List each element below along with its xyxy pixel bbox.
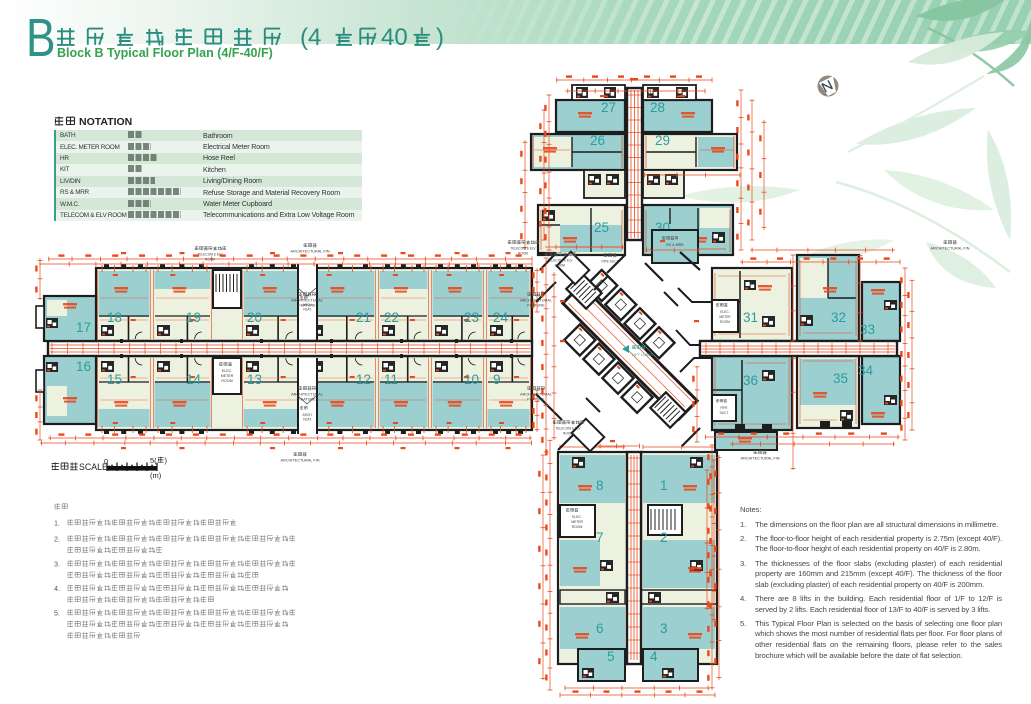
svg-text:36: 36 (743, 373, 758, 388)
svg-text:19: 19 (186, 310, 201, 325)
svg-text:16: 16 (76, 359, 91, 374)
svg-text:11: 11 (384, 372, 398, 387)
svg-text:ROOM: ROOM (518, 251, 528, 255)
svg-text:DUCT: DUCT (720, 411, 729, 415)
svg-text:ARCHITECTURAL FIN: ARCHITECTURAL FIN (931, 247, 970, 251)
svg-text:8: 8 (596, 478, 604, 493)
svg-text:27: 27 (601, 100, 616, 115)
svg-text:ARCHITECTURAL FIN: ARCHITECTURAL FIN (281, 459, 320, 463)
svg-text:23: 23 (464, 310, 479, 325)
svg-text:ROOM: ROOM (563, 431, 573, 435)
svg-text:29: 29 (655, 133, 670, 148)
svg-text:20: 20 (247, 310, 262, 325)
svg-text:31: 31 (743, 310, 758, 325)
svg-text:28: 28 (650, 100, 665, 115)
svg-text:LIFT LOBBY: LIFT LOBBY (632, 353, 654, 357)
svg-text:15: 15 (107, 372, 122, 387)
svg-text:4.: 4. (54, 584, 60, 593)
svg-text:PIPE: PIPE (720, 406, 727, 410)
svg-text:ARCHITECTURAL FIN: ARCHITECTURAL FIN (291, 250, 330, 254)
svg-text:5(: 5( (150, 456, 157, 465)
svg-text:ARCHITECTURAL: ARCHITECTURAL (520, 393, 552, 397)
svg-text:ROOM: ROOM (720, 320, 730, 324)
svg-text:ROOM: ROOM (555, 263, 565, 267)
svg-text:35: 35 (833, 371, 848, 386)
svg-text:4: 4 (650, 649, 658, 664)
svg-text:7: 7 (596, 530, 604, 545)
svg-text:RS & MRR: RS & MRR (666, 243, 684, 247)
svg-text:FEATURE: FEATURE (298, 303, 316, 307)
svg-text:ROOM: ROOM (572, 525, 583, 529)
svg-text:ELEC.: ELEC. (720, 310, 729, 314)
svg-text:1.: 1. (54, 518, 60, 527)
svg-text:12: 12 (356, 372, 371, 387)
svg-text:(4: (4 (300, 24, 321, 51)
svg-text:1: 1 (660, 478, 668, 493)
svg-text:ARCHITECTURAL: ARCHITECTURAL (520, 299, 552, 303)
svg-text:FEATURE: FEATURE (527, 303, 545, 307)
svg-text:2.: 2. (54, 534, 60, 543)
svg-text:FEATURE: FEATURE (527, 397, 545, 401)
svg-text:33: 33 (860, 322, 875, 337)
svg-text:3: 3 (660, 621, 668, 636)
svg-text:3.: 3. (54, 559, 60, 568)
svg-text:ELEC.: ELEC. (572, 515, 582, 519)
svg-text:TELECOM & ELV: TELECOM & ELV (547, 259, 573, 263)
svg-text:13: 13 (247, 372, 262, 387)
svg-text:10: 10 (464, 372, 479, 387)
svg-text:ARCHITECTURAL FIN: ARCHITECTURAL FIN (741, 457, 780, 461)
svg-text:5: 5 (607, 649, 615, 664)
svg-text:NOTATION: NOTATION (79, 116, 132, 128)
svg-text:14: 14 (186, 372, 202, 387)
svg-text:0: 0 (104, 457, 108, 466)
svg-text:24: 24 (493, 310, 509, 325)
svg-text:FEATURE: FEATURE (298, 397, 316, 401)
svg-text:25: 25 (594, 220, 609, 235)
svg-text:18: 18 (107, 310, 122, 325)
svg-text:ARCHITECTURAL: ARCHITECTURAL (291, 393, 323, 397)
svg-text:6: 6 (596, 621, 604, 636)
svg-text:TELECOM & ELV: TELECOM & ELV (555, 427, 581, 431)
svg-text:METER: METER (571, 520, 583, 524)
svg-text:ARCHITECTURAL: ARCHITECTURAL (291, 299, 323, 303)
svg-text:PIPE DUCT: PIPE DUCT (601, 260, 618, 264)
svg-text:34: 34 (858, 363, 874, 378)
svg-text:ROOM: ROOM (205, 257, 215, 261)
svg-text:TELECOM & ELV: TELECOM & ELV (197, 253, 223, 257)
svg-text:METER: METER (221, 374, 234, 378)
svg-text:22: 22 (384, 310, 399, 325)
svg-text:FEAT.: FEAT. (303, 308, 312, 312)
svg-text:26: 26 (590, 133, 605, 148)
svg-text:): ) (165, 456, 168, 465)
svg-text:(m): (m) (150, 471, 162, 480)
svg-text:17: 17 (76, 320, 91, 335)
svg-text:FEAT.: FEAT. (303, 418, 312, 422)
svg-text:40: 40 (381, 24, 408, 51)
svg-text:ARCH.: ARCH. (303, 413, 313, 417)
svg-text:2: 2 (660, 530, 668, 545)
svg-text:32: 32 (831, 310, 846, 325)
svg-text:ROOM: ROOM (221, 379, 232, 383)
svg-text:TELECOM & ELV: TELECOM & ELV (510, 247, 536, 251)
svg-text:): ) (436, 24, 444, 51)
svg-text:9: 9 (493, 372, 501, 387)
svg-text:ELEC.: ELEC. (222, 369, 232, 373)
svg-text:METER: METER (719, 315, 731, 319)
svg-text:5.: 5. (54, 608, 60, 617)
svg-text:21: 21 (356, 310, 371, 325)
